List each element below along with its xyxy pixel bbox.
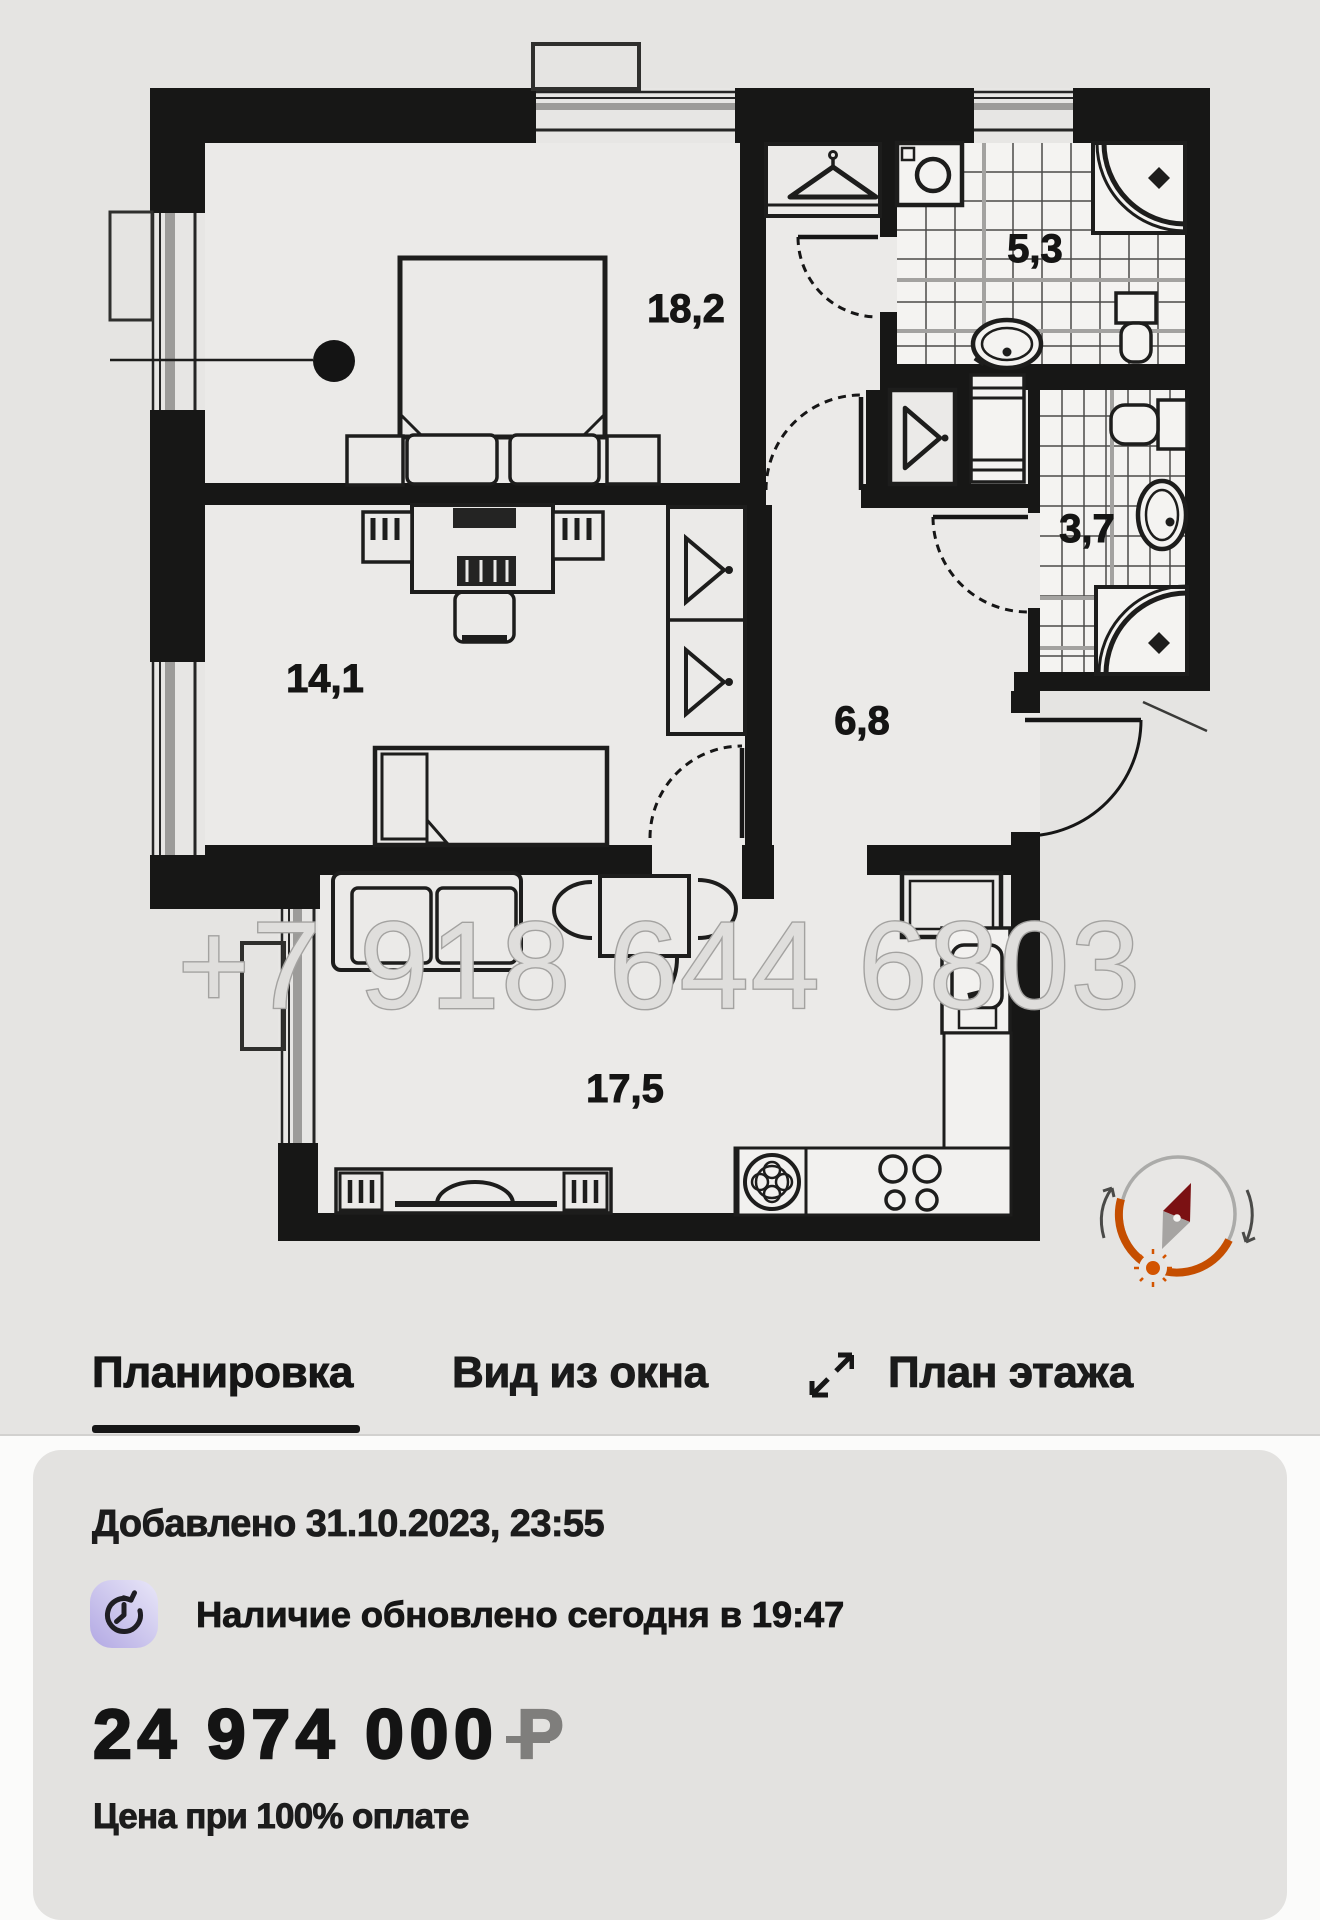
svg-text:5,3: 5,3 xyxy=(1007,227,1063,271)
svg-text:6,8: 6,8 xyxy=(834,699,890,743)
svg-text:14,1: 14,1 xyxy=(286,657,364,701)
svg-text:3,7: 3,7 xyxy=(1059,507,1115,551)
svg-text:+7 918 644 6803: +7 918 644 6803 xyxy=(178,898,1142,1035)
svg-text:18,2: 18,2 xyxy=(647,287,725,331)
svg-text:17,5: 17,5 xyxy=(586,1067,664,1111)
